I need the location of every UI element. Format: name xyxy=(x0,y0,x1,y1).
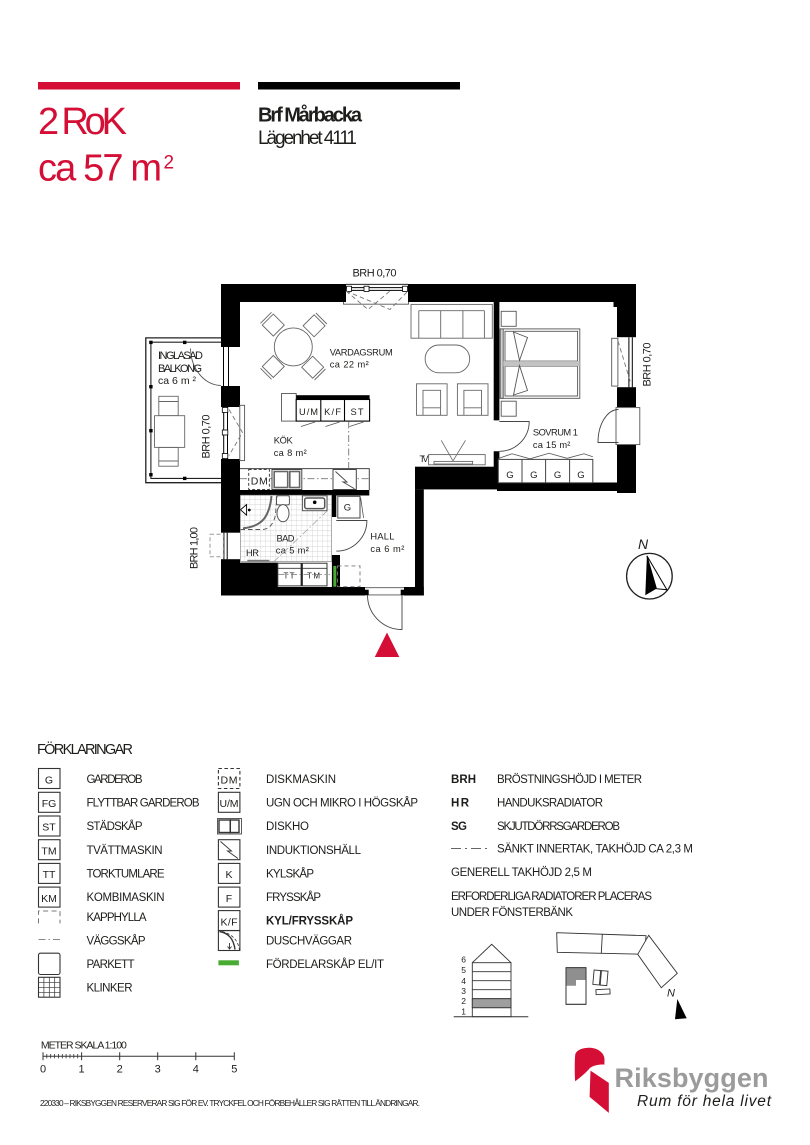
svg-text:2 RoK: 2 RoK xyxy=(38,101,127,143)
svg-text:5: 5 xyxy=(231,1064,237,1076)
svg-text:TV: TV xyxy=(420,454,429,464)
svg-text:ERFORDERLIGA RADIATORER PLACER: ERFORDERLIGA RADIATORER PLACERAS xyxy=(451,891,652,903)
svg-text:ca 22 m²: ca 22 m² xyxy=(330,359,369,369)
svg-text:SOVRUM 1: SOVRUM 1 xyxy=(533,427,578,437)
svg-text:BRH 0,70: BRH 0,70 xyxy=(201,415,213,459)
svg-text:G: G xyxy=(45,774,53,786)
svg-text:SÄNKT INNERTAK, TAKHÖJD CA 2,3: SÄNKT INNERTAK, TAKHÖJD CA 2,3 M xyxy=(497,844,693,856)
svg-text:STÄDSKÅP: STÄDSKÅP xyxy=(87,820,143,833)
svg-text:2: 2 xyxy=(117,1064,123,1076)
svg-text:ST: ST xyxy=(42,822,56,834)
svg-text:KM: KM xyxy=(41,893,57,905)
svg-text:FLYTTBAR GARDEROB: FLYTTBAR GARDEROB xyxy=(87,798,200,810)
svg-text:G: G xyxy=(506,470,513,481)
svg-text:K/F: K/F xyxy=(324,407,341,417)
svg-text:DISKMASKIN: DISKMASKIN xyxy=(266,774,336,786)
svg-text:UNDER FÖNSTERBÄNK: UNDER FÖNSTERBÄNK xyxy=(451,907,573,919)
svg-text:220330 – RIKSBYGGEN RESERVERAR: 220330 – RIKSBYGGEN RESERVERAR SIG FÖR E… xyxy=(40,1098,420,1108)
svg-text:KÖK: KÖK xyxy=(274,436,294,446)
svg-text:TT: TT xyxy=(43,869,56,881)
svg-text:DM: DM xyxy=(221,774,238,786)
svg-text:KYLSKÅP: KYLSKÅP xyxy=(266,867,314,880)
svg-text:SG: SG xyxy=(451,821,467,833)
svg-text:METER SKALA 1:100: METER SKALA 1:100 xyxy=(41,1040,127,1052)
svg-text:ca 6 m²: ca 6 m² xyxy=(370,544,404,554)
svg-text:VARDAGSRUM: VARDAGSRUM xyxy=(330,347,393,357)
svg-text:2: 2 xyxy=(461,996,466,1006)
svg-text:5: 5 xyxy=(461,965,466,975)
svg-text:FÖRKLARINGAR: FÖRKLARINGAR xyxy=(37,740,133,758)
svg-text:4: 4 xyxy=(461,976,466,986)
svg-text:F: F xyxy=(226,893,232,905)
svg-text:G: G xyxy=(577,470,584,481)
svg-text:FG: FG xyxy=(42,798,57,810)
svg-text:ST: ST xyxy=(351,407,364,417)
svg-text:0: 0 xyxy=(40,1064,46,1076)
svg-text:G: G xyxy=(554,470,561,481)
svg-text:1: 1 xyxy=(79,1064,85,1076)
svg-text:BRÖSTNINGSHÖJD I METER: BRÖSTNINGSHÖJD I METER xyxy=(497,774,642,786)
svg-text:INGLASAD: INGLASAD xyxy=(158,350,203,362)
svg-text:G: G xyxy=(344,503,351,514)
svg-text:ca 8 m²: ca 8 m² xyxy=(274,448,307,458)
svg-text:KOMBIMASKIN: KOMBIMASKIN xyxy=(87,892,165,904)
svg-text:6: 6 xyxy=(461,955,466,965)
svg-text:SKJUTDÖRRSGARDEROB: SKJUTDÖRRSGARDEROB xyxy=(497,821,620,833)
svg-text:HALL: HALL xyxy=(370,531,394,541)
svg-text:K/F: K/F xyxy=(221,916,238,928)
svg-text:UGN OCH MIKRO I HÖGSKÅP: UGN OCH MIKRO I HÖGSKÅP xyxy=(266,797,418,810)
svg-text:ca 57 m: ca 57 m xyxy=(38,148,162,190)
svg-text:G: G xyxy=(530,470,537,481)
svg-text:FÖRDELARSKÅP EL/IT: FÖRDELARSKÅP EL/IT xyxy=(266,958,384,971)
svg-text:2: 2 xyxy=(164,153,175,174)
svg-text:FRYSSKÅP: FRYSSKÅP xyxy=(266,891,321,904)
svg-text:DISKHO: DISKHO xyxy=(266,821,309,833)
svg-text:Brf Mårbacka: Brf Mårbacka xyxy=(258,104,363,127)
svg-text:N: N xyxy=(638,536,649,552)
svg-text:GARDEROB: GARDEROB xyxy=(87,774,143,786)
svg-text:BRH 0,70: BRH 0,70 xyxy=(642,343,654,387)
svg-text:Rum för hela livet: Rum för hela livet xyxy=(637,1093,772,1110)
svg-text:TVÄTTMASKIN: TVÄTTMASKIN xyxy=(87,845,163,857)
svg-text:Lägenhet 4111: Lägenhet 4111 xyxy=(258,128,357,149)
svg-text:GENERELL TAKHÖJD 2,5 M: GENERELL TAKHÖJD 2,5 M xyxy=(451,867,592,879)
svg-text:BRH 1,00: BRH 1,00 xyxy=(189,527,201,569)
svg-text:4: 4 xyxy=(193,1064,199,1076)
svg-text:TT: TT xyxy=(284,572,295,581)
svg-text:BRH 0,70: BRH 0,70 xyxy=(353,268,397,280)
svg-text:3: 3 xyxy=(155,1064,161,1076)
svg-text:KYL/FRYSSKÅP: KYL/FRYSSKÅP xyxy=(266,915,353,928)
svg-text:DM: DM xyxy=(251,475,268,487)
svg-text:U/M: U/M xyxy=(220,798,239,810)
svg-text:PARKETT: PARKETT xyxy=(87,959,135,971)
svg-text:KAPPHYLLA: KAPPHYLLA xyxy=(87,912,147,924)
svg-text:1: 1 xyxy=(461,1006,466,1016)
svg-text:3: 3 xyxy=(461,986,466,996)
svg-text:Riksbyggen: Riksbyggen xyxy=(615,1063,769,1093)
svg-text:ca 5 m²: ca 5 m² xyxy=(276,546,309,556)
svg-text:ca 15 m²: ca 15 m² xyxy=(533,440,571,450)
svg-text:VÄGGSKÅP: VÄGGSKÅP xyxy=(87,934,146,947)
svg-text:N: N xyxy=(667,988,675,1000)
svg-text:KLINKER: KLINKER xyxy=(87,982,133,994)
svg-text:HR: HR xyxy=(246,548,259,558)
svg-text:BRH: BRH xyxy=(451,774,476,786)
svg-text:TM: TM xyxy=(307,572,320,581)
svg-text:K: K xyxy=(225,869,232,881)
svg-text:ca 6 m ²: ca 6 m ² xyxy=(158,375,197,387)
svg-text:U/M: U/M xyxy=(299,407,318,417)
svg-text:BALKONG: BALKONG xyxy=(158,363,202,375)
svg-text:HR: HR xyxy=(451,798,470,810)
svg-text:INDUKTIONSHÄLL: INDUKTIONSHÄLL xyxy=(266,845,362,857)
svg-text:DUSCHVÄGGAR: DUSCHVÄGGAR xyxy=(266,935,352,947)
svg-text:TM: TM xyxy=(41,845,56,857)
svg-text:HANDUKSRADIATOR: HANDUKSRADIATOR xyxy=(497,798,603,810)
svg-text:TORKTUMLARE: TORKTUMLARE xyxy=(87,868,165,880)
svg-text:BAD: BAD xyxy=(277,533,295,543)
